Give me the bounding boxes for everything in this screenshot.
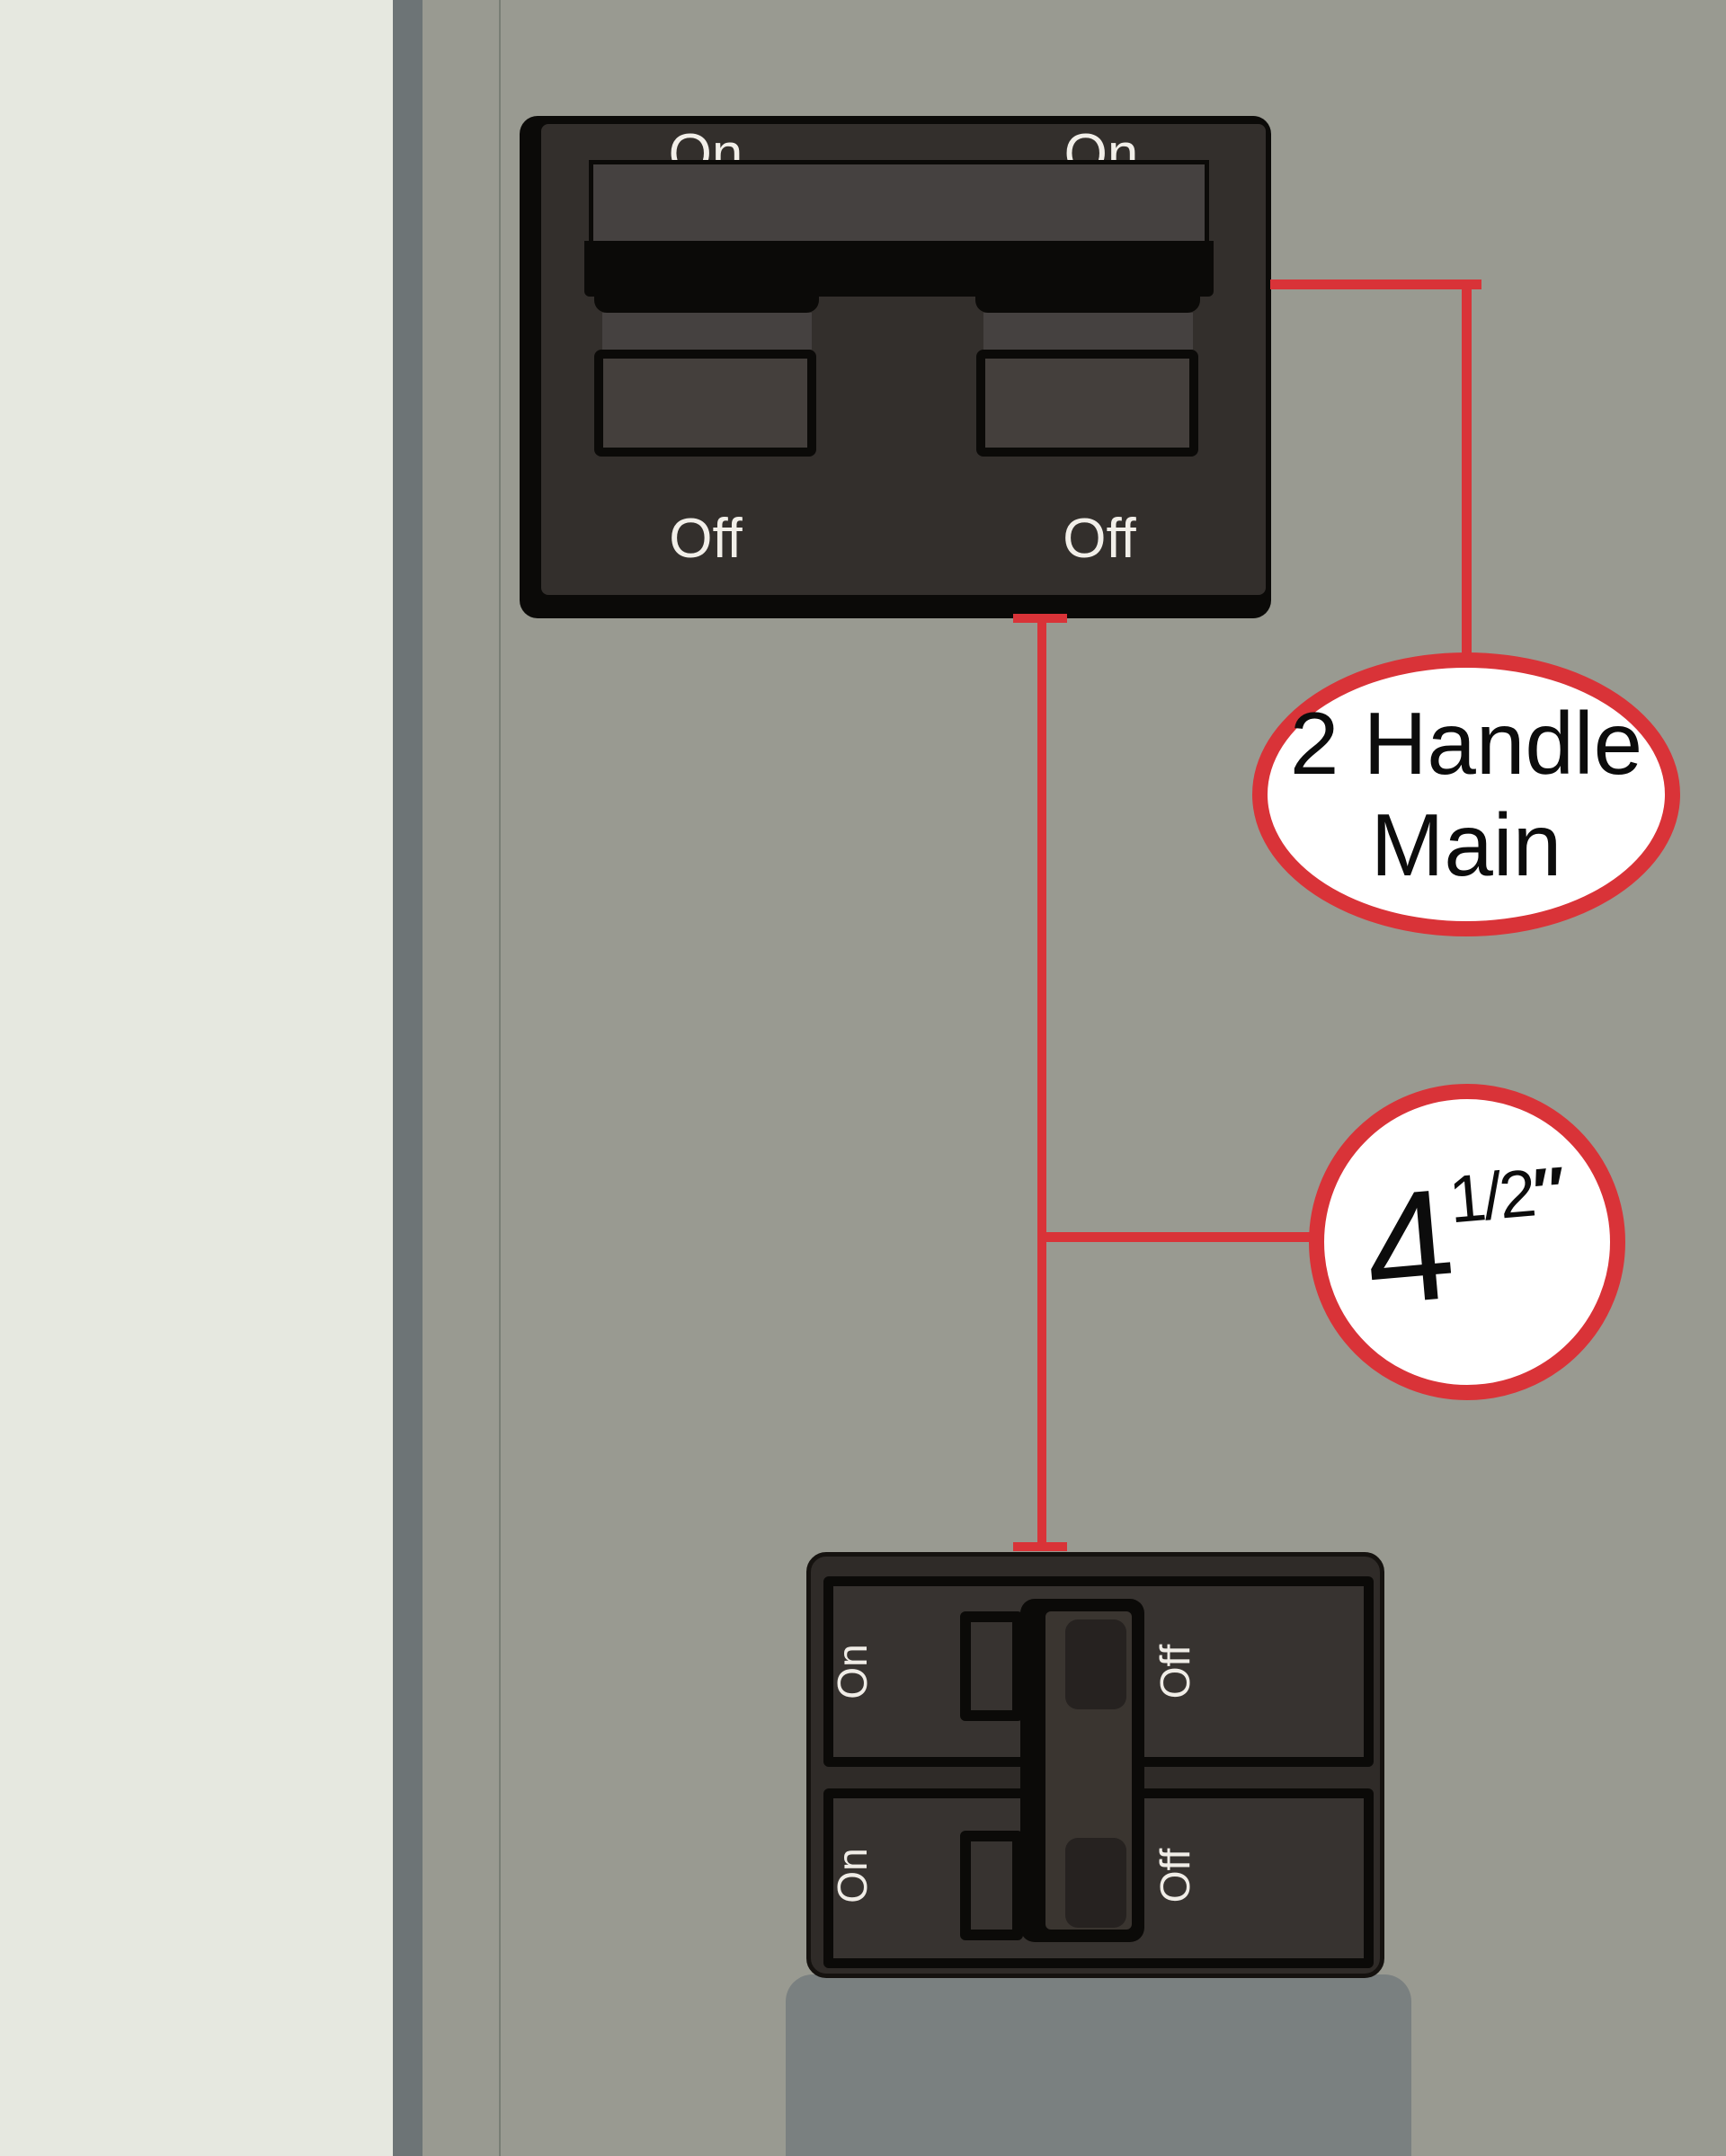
wall-background (0, 0, 393, 2156)
main-breaker-handle-black-bar (584, 241, 1214, 297)
socket-housing (786, 1974, 1411, 2156)
branch-pole-1-off-label: Off (1154, 1609, 1196, 1735)
branch-breaker-slot-1 (960, 1611, 1023, 1721)
main-breaker-slot-left (594, 350, 816, 457)
main-breaker-handle-stub-right (975, 295, 1200, 313)
distance-text: 4 1/2 ″ (1358, 1155, 1575, 1329)
branch-pole-2-on-label: On (832, 1813, 873, 1939)
callout-2-handle-main: 2 Handle Main (1252, 652, 1680, 936)
main-breaker: On On Off Off (520, 116, 1271, 618)
branch-breaker-slot-2 (960, 1831, 1023, 1940)
branch-pole-2-off-label: Off (1154, 1813, 1196, 1939)
callout-main-line2: Main (1371, 794, 1561, 896)
main-breaker-strip-left (602, 313, 812, 350)
branch-breaker-handle-tip-1 (1065, 1619, 1126, 1709)
branch-breaker-handle-tip-2 (1065, 1838, 1126, 1928)
distance-unit: ″ (1530, 1157, 1568, 1226)
dimension-tick-top (1013, 614, 1067, 623)
dimension-line (1037, 618, 1046, 1547)
breaker-panel-diagram: On On Off Off On Off On Off 2 Handle Mai… (0, 0, 1726, 2156)
panel-edge-strip (393, 0, 423, 2156)
main-breaker-slot-right (976, 350, 1198, 457)
callout-main-line1: 2 Handle (1290, 693, 1642, 794)
main-breaker-handle-stub-left (594, 295, 819, 313)
distance-fraction: 1/2 (1446, 1159, 1536, 1233)
main-breaker-off-label-left: Off (643, 511, 769, 567)
main-breaker-off-label-right: Off (1036, 511, 1162, 567)
callout-line-horizontal (1270, 279, 1481, 289)
distance-whole: 4 (1358, 1165, 1459, 1329)
branch-breaker: On Off On Off (806, 1552, 1384, 1978)
branch-pole-1-on-label: On (832, 1609, 873, 1735)
panel-seam-line (499, 0, 501, 2156)
main-breaker-strip-right (983, 313, 1193, 350)
callout-line-vertical (1462, 279, 1472, 666)
callout-distance: 4 1/2 ″ (1309, 1084, 1625, 1400)
main-breaker-handle-bar (589, 160, 1209, 243)
dimension-tick-bottom (1013, 1542, 1067, 1551)
dimension-branch-line (1037, 1232, 1310, 1242)
